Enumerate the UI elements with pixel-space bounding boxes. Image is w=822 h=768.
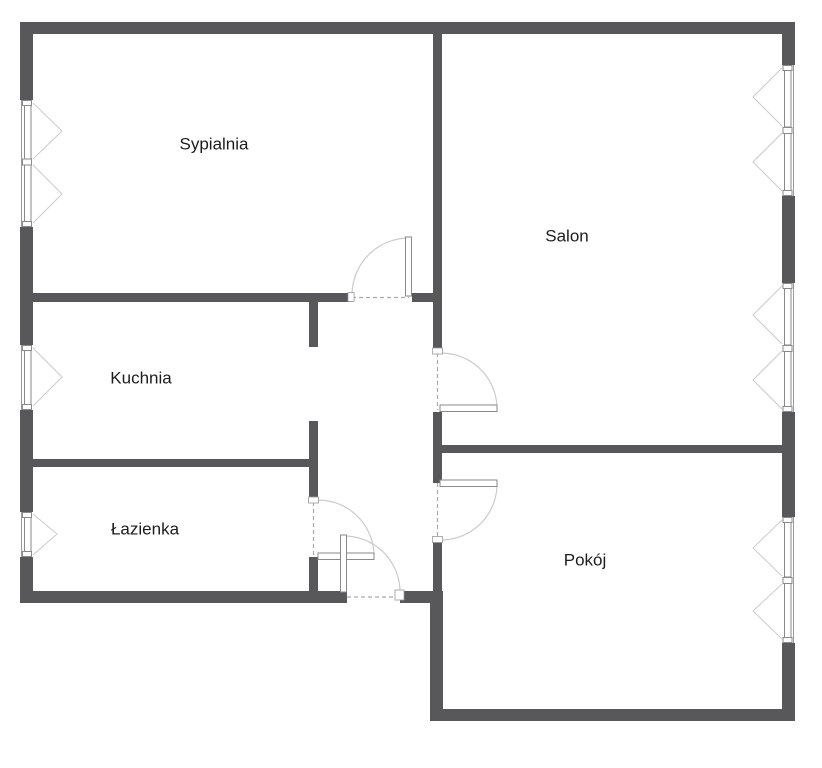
door-pokoj-icon [433,480,498,543]
wall-right-2 [782,196,795,283]
wall-bottom-right [430,709,795,721]
wall-corridor-kuchnia-stub [309,302,318,347]
room-label-sypialnia: Sypialnia [180,136,249,153]
room-area-salon [442,34,782,445]
wall-step-vertical [430,591,443,721]
room-label-salon: Salon [545,228,588,245]
wall-left-2 [20,227,33,345]
window-kuchnia-icon [22,345,63,410]
wall-salon-left-3 [433,540,442,591]
window-lazienka-icon [22,512,58,557]
room-area-pokoj [442,453,782,709]
wall-salon-pokoj [442,445,782,453]
door-salon-icon [433,348,498,412]
wall-right-1 [782,22,795,65]
room-area-sypialnia [33,34,433,293]
wall-left-1 [20,22,33,100]
wall-corridor-lazienka-2 [309,557,318,591]
wall-left-3 [20,410,33,512]
wall-bottom-left-a [20,591,347,603]
room-label-lazienka: Łazienka [111,521,179,538]
door-entrance-icon [341,535,405,600]
floor-plan: Sypialnia Salon Kuchnia Łazienka Pokój [0,0,822,768]
window-sypialnia-icon [22,100,63,227]
doors [309,237,498,600]
windows [22,65,794,643]
room-label-pokoj: Pokój [564,552,607,569]
window-salon-top-icon [753,65,794,196]
window-salon-bottom-icon [753,283,794,412]
window-pokoj-icon [753,517,794,643]
wall-sypialnia-kuchnia [33,293,352,302]
room-label-kuchnia: Kuchnia [110,370,171,387]
wall-salon-left-1 [433,34,442,353]
wall-top [20,22,795,34]
wall-right-3 [782,412,795,517]
wall-kuchnia-lazienka [33,459,318,467]
wall-salon-left-2 [433,412,442,483]
door-sypialnia-icon [348,237,412,302]
